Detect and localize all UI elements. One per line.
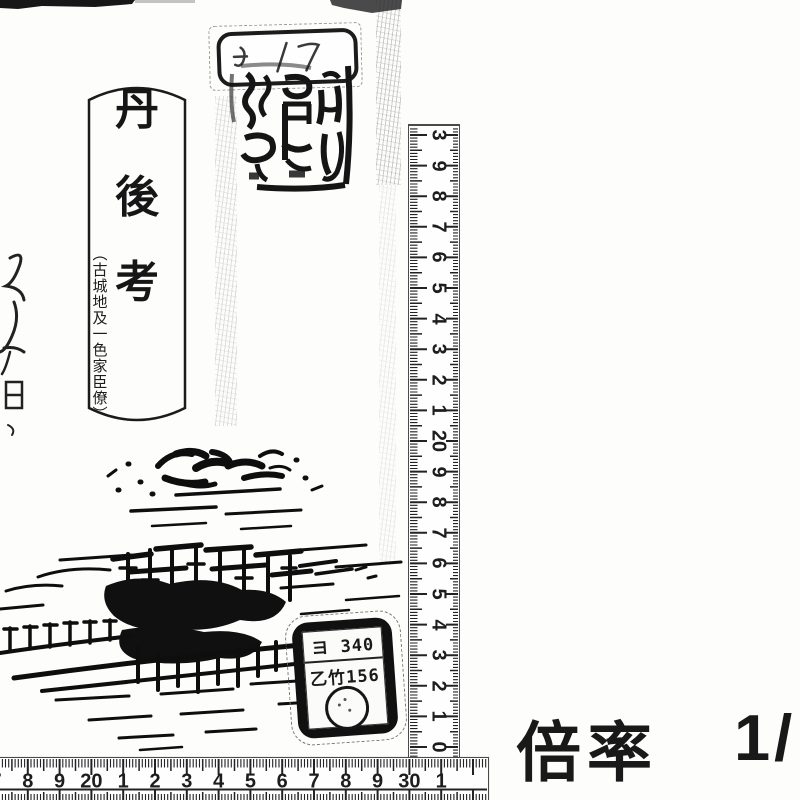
ruler-number: 8 bbox=[427, 191, 450, 202]
title-char-1: 丹 bbox=[87, 88, 187, 132]
ruler-number: 6 bbox=[277, 771, 288, 794]
ruler-number: 5 bbox=[427, 282, 450, 293]
ruler-number: 30 bbox=[398, 771, 420, 794]
top-edge-shadow bbox=[0, 0, 410, 16]
ruler-number: 5 bbox=[427, 588, 450, 599]
ruler-number: 3 bbox=[427, 344, 450, 355]
ruler-number: 2 bbox=[427, 374, 450, 385]
ruler-number: 8 bbox=[22, 771, 33, 794]
ruler-number: 7 bbox=[0, 771, 2, 794]
ruler-number: 8 bbox=[340, 771, 351, 794]
magnification-label: 倍率 bbox=[516, 700, 658, 794]
horizontal-ruler: 78920123456789301 bbox=[0, 757, 489, 800]
ruler-number: 7 bbox=[308, 771, 319, 794]
title-slip: 丹 後 考 （古城地及一色家臣僚） bbox=[87, 70, 187, 438]
scanned-book-cover: 丹 後 考 （古城地及一色家臣僚） bbox=[0, 0, 800, 800]
ruler-number: 1 bbox=[427, 405, 450, 416]
ruler-number: 3 bbox=[427, 129, 450, 140]
ruler-number: 5 bbox=[245, 771, 256, 794]
ruler-number: 2 bbox=[427, 680, 450, 691]
title-char-2: 後 bbox=[87, 176, 187, 220]
vertical-ruler: 3987654321209876543210 bbox=[408, 124, 460, 770]
ruler-number: 20 bbox=[80, 771, 102, 794]
ruler-number: 4 bbox=[427, 619, 450, 630]
ruler-number: 1 bbox=[118, 771, 129, 794]
call-label-frame: ヨ 340 乙竹156 bbox=[291, 617, 399, 740]
ruler-number: 0 bbox=[427, 741, 450, 752]
title-subtitle: （古城地及一色家臣僚） bbox=[90, 246, 107, 422]
ruler-number: 20 bbox=[427, 430, 450, 452]
ruler-number: 1 bbox=[436, 771, 447, 794]
ruler-number: 6 bbox=[427, 252, 450, 263]
ruler-number: 8 bbox=[427, 497, 450, 508]
ruler-number: 4 bbox=[427, 313, 450, 324]
ruler-number: 6 bbox=[427, 558, 450, 569]
library-seal bbox=[227, 60, 355, 192]
ruler-number: 7 bbox=[427, 221, 450, 232]
call-label-seal-circle bbox=[324, 684, 371, 731]
ruler-number: 9 bbox=[427, 160, 450, 171]
ruler-number: 3 bbox=[181, 771, 192, 794]
ruler-number: 2 bbox=[149, 771, 160, 794]
ruler-number: 9 bbox=[372, 771, 383, 794]
ruler-number: 9 bbox=[427, 466, 450, 477]
left-edge-handwriting bbox=[0, 240, 40, 450]
magnification-value: 1/ bbox=[734, 700, 796, 775]
book-edge-noise bbox=[376, 0, 401, 185]
ruler-number: 7 bbox=[427, 527, 450, 538]
ruler-number: 9 bbox=[54, 771, 65, 794]
ruler-number: 1 bbox=[427, 711, 450, 722]
ruler-number: 4 bbox=[213, 771, 224, 794]
ruler-number: 3 bbox=[427, 650, 450, 661]
call-number-label: ヨ 340 乙竹156 bbox=[291, 617, 399, 740]
